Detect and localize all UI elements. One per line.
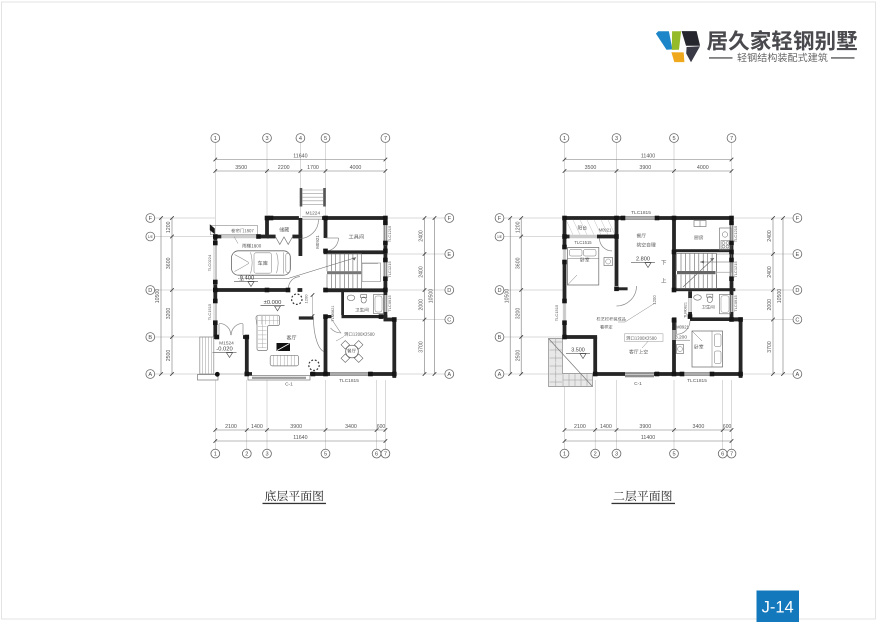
svg-text:2.800: 2.800 [636,257,650,263]
svg-text:11400: 11400 [641,153,655,159]
svg-text:TLC1215: TLC1215 [387,261,392,278]
svg-text:3900: 3900 [639,424,651,430]
svg-text:3: 3 [265,452,268,458]
svg-text:TLC1815: TLC1815 [339,378,359,384]
svg-text:M0921: M0921 [599,228,612,233]
svg-text:TLC0915: TLC0915 [387,295,392,312]
svg-text:2100: 2100 [225,424,237,430]
svg-text:2000: 2000 [767,299,773,311]
svg-text:TLC1215: TLC1215 [387,225,392,242]
svg-text:TLC1515: TLC1515 [574,240,592,245]
svg-text:J-14: J-14 [762,599,794,617]
svg-text:M0921: M0921 [676,324,689,329]
svg-text:2500: 2500 [515,350,521,362]
svg-text:2: 2 [245,452,248,458]
svg-text:2100: 2100 [574,424,586,430]
svg-text:M0921: M0921 [315,235,320,249]
svg-text:6: 6 [721,452,724,458]
svg-text:2400: 2400 [767,266,773,278]
svg-text:3900: 3900 [290,424,302,430]
svg-text:A: A [148,372,152,378]
svg-text:1400: 1400 [251,424,263,430]
svg-text:3: 3 [265,136,268,142]
svg-text:5: 5 [324,136,327,142]
svg-text:3600: 3600 [515,257,521,269]
svg-text:7: 7 [384,452,387,458]
svg-text:3600: 3600 [166,257,172,269]
svg-text:1/E: 1/E [148,235,154,239]
svg-text:E: E [796,252,800,258]
svg-text:2400: 2400 [767,230,773,242]
svg-text:TLC1215: TLC1215 [733,261,738,278]
svg-text:5: 5 [324,452,327,458]
svg-text:-0.400: -0.400 [238,276,254,282]
svg-text:C: C [795,318,799,324]
svg-text:600: 600 [723,424,732,430]
svg-text:1700: 1700 [307,165,319,171]
svg-text:3400: 3400 [693,424,705,430]
svg-text:-0.020: -0.020 [216,347,232,353]
svg-text:1: 1 [563,452,566,458]
svg-text:B: B [498,335,502,341]
svg-text:3: 3 [615,452,618,458]
svg-text:F: F [498,216,502,222]
svg-text:1200: 1200 [303,294,308,304]
svg-text:TLM0821: TLM0821 [331,305,335,321]
svg-text:D: D [447,288,451,294]
svg-text:1200: 1200 [652,295,657,305]
svg-text:B: B [148,335,152,341]
svg-text:7: 7 [384,136,387,142]
svg-text:3500: 3500 [585,165,597,171]
svg-text:10500: 10500 [777,289,783,304]
svg-text:3200: 3200 [515,308,521,320]
svg-text:2400: 2400 [419,266,425,278]
svg-text:4000: 4000 [350,165,362,171]
svg-text:M1224: M1224 [305,211,320,217]
svg-text:1: 1 [214,452,217,458]
svg-text:A: A [498,372,502,378]
svg-text:4: 4 [299,136,302,142]
svg-text:2500: 2500 [166,350,172,362]
svg-text:C-1: C-1 [285,381,293,387]
svg-text:A: A [447,372,451,378]
svg-text:600: 600 [377,424,386,430]
svg-text:4000: 4000 [697,165,709,171]
svg-text:3700: 3700 [419,341,425,353]
svg-text:1: 1 [214,136,217,142]
svg-text:6: 6 [375,452,378,458]
svg-text:3.200: 3.200 [675,335,687,341]
svg-text:C-1: C-1 [634,381,642,387]
svg-text:D: D [795,288,799,294]
svg-text:TLC1515: TLC1515 [207,303,212,320]
svg-text:7: 7 [730,136,733,142]
svg-text:E: E [447,252,451,258]
svg-text:D: D [497,288,501,294]
svg-text:F: F [149,216,153,222]
svg-text:TLC1815: TLC1815 [687,378,707,384]
svg-text:7: 7 [730,452,733,458]
svg-text:TLC1215: TLC1215 [733,225,738,242]
svg-text:TLC0915: TLC0915 [733,295,738,312]
svg-text:10500: 10500 [504,289,510,304]
svg-text:TLC0224: TLC0224 [207,254,212,271]
svg-text:3900: 3900 [639,165,651,171]
svg-text:3.500: 3.500 [571,348,585,354]
svg-text:C: C [447,318,451,324]
svg-text:11640: 11640 [293,153,307,159]
svg-text:D: D [148,288,152,294]
svg-text:1200: 1200 [515,221,521,233]
svg-text:3: 3 [615,136,618,142]
svg-text:3400: 3400 [345,424,357,430]
svg-text:10500: 10500 [429,289,435,304]
svg-text:11640: 11640 [293,435,307,441]
svg-text:1400: 1400 [600,424,612,430]
svg-text:5: 5 [672,452,675,458]
svg-text:11400: 11400 [641,435,655,441]
svg-text:TLC1815: TLC1815 [631,210,651,216]
svg-text:1: 1 [563,136,566,142]
svg-text:1200: 1200 [166,221,172,233]
svg-text:10500: 10500 [155,289,161,304]
svg-text:F: F [448,216,452,222]
svg-text:5: 5 [672,136,675,142]
svg-text:3500: 3500 [235,165,247,171]
svg-text:2400: 2400 [419,230,425,242]
svg-text:TLM0821: TLM0821 [683,302,687,318]
svg-text:2200: 2200 [278,165,290,171]
svg-text:±0.000: ±0.000 [264,300,282,306]
svg-text:TLC1515: TLC1515 [554,304,559,321]
svg-text:A: A [796,372,800,378]
svg-text:2: 2 [594,452,597,458]
svg-text:2000: 2000 [419,299,425,311]
svg-text:F: F [796,216,800,222]
svg-text:1/E: 1/E [497,235,503,239]
svg-text:3200: 3200 [166,308,172,320]
svg-text:3700: 3700 [767,341,773,353]
